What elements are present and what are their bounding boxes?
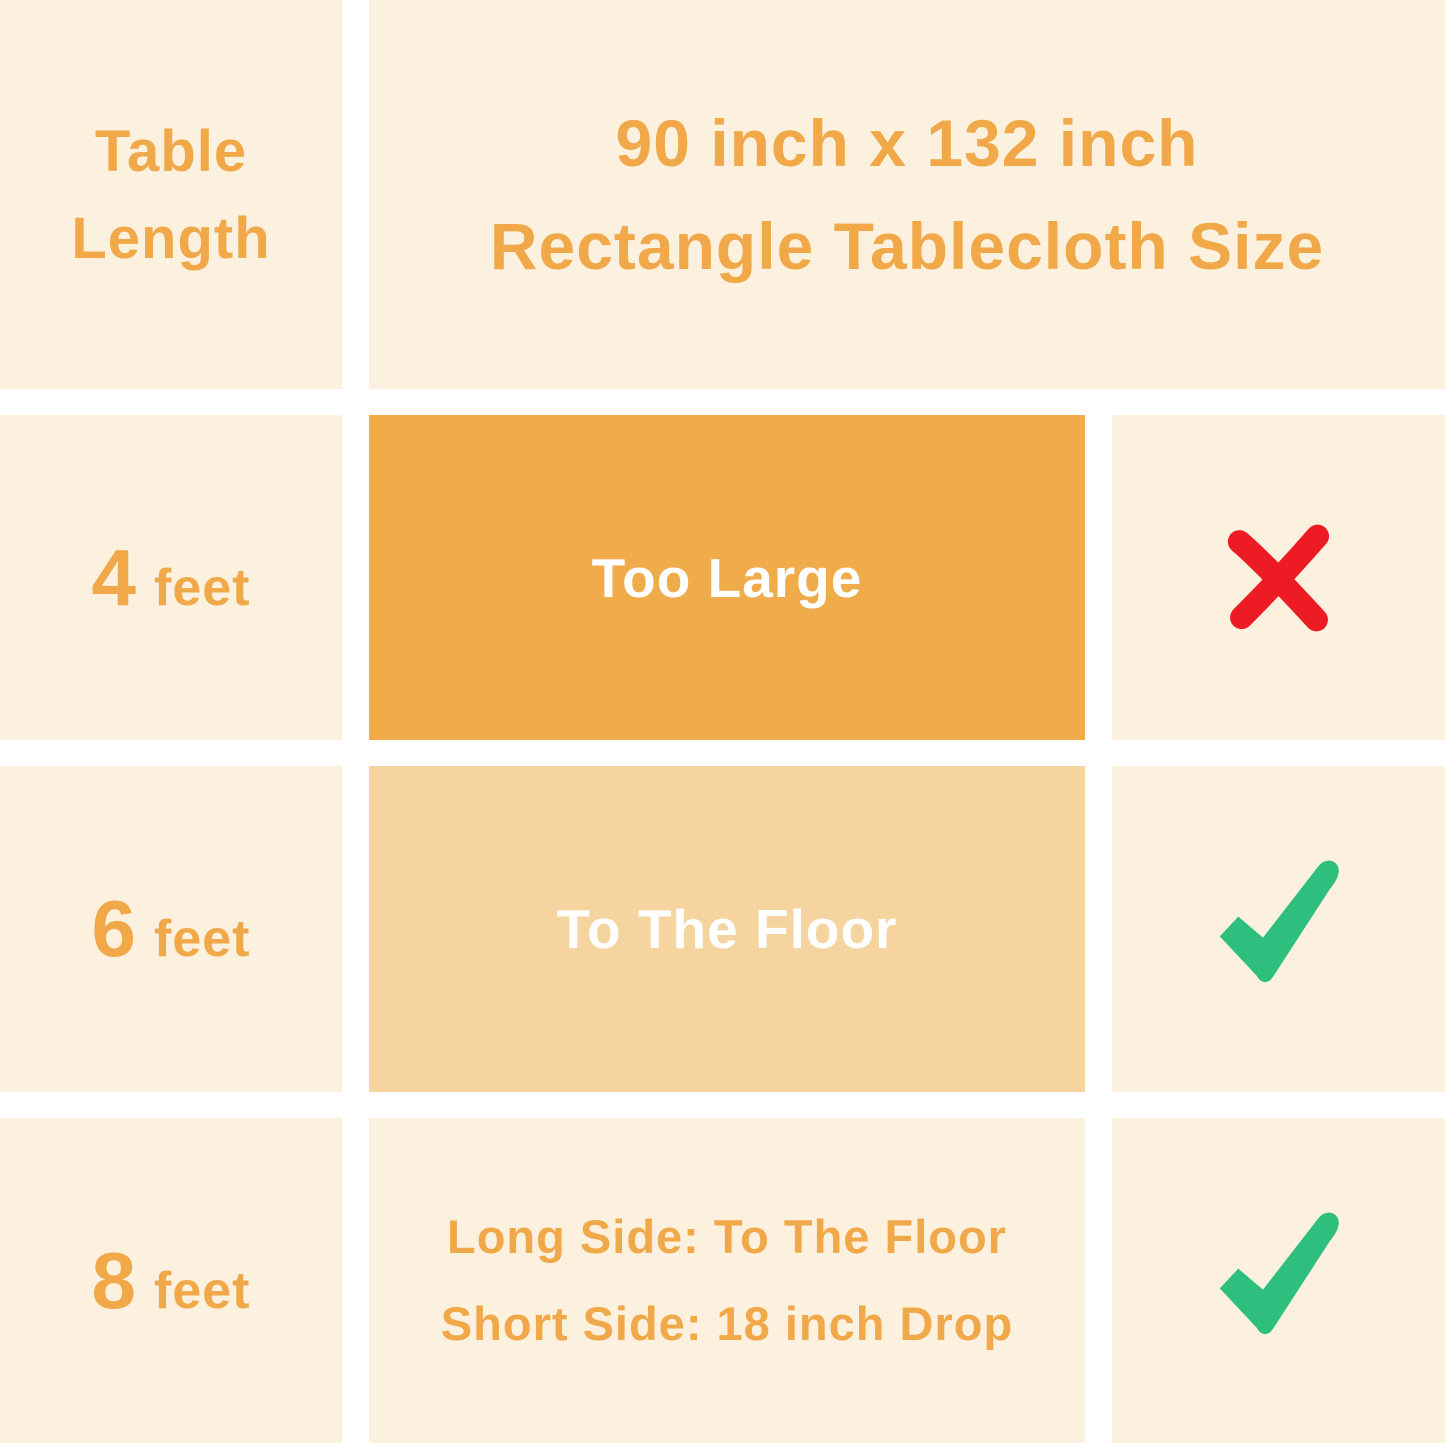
row-6ft-verdict-cell [1112,766,1445,1092]
green-check-icon [1205,1207,1353,1355]
fit-label-to-the-floor: To The Floor [557,897,898,961]
page-title: 90 inch x 132 inch Rectangle Tablecloth … [490,92,1324,297]
length-value: 6 [92,883,137,975]
title-line2: Rectangle Tablecloth Size [490,195,1324,297]
fit-label-too-large: Too Large [592,546,863,610]
fit-description-8ft: Long Side: To The Floor Short Side: 18 i… [441,1194,1013,1368]
row-4ft-length-cell: 4 feet [0,415,342,740]
length-unit: feet [154,909,250,969]
fit-short-side-line: Short Side: 18 inch Drop [441,1281,1013,1368]
green-check-icon [1205,855,1353,1003]
table-length-label: Table Length [71,108,270,282]
red-x-icon [1213,512,1345,644]
length-value: 4 [92,532,137,624]
length-unit: feet [154,1261,250,1321]
length-label-8ft: 8 feet [92,1235,251,1327]
tablecloth-size-infographic: Table Length 90 inch x 132 inch Rectangl… [0,0,1445,1445]
row-8ft-verdict-cell [1112,1118,1445,1443]
length-value: 8 [92,1235,137,1327]
length-label-4ft: 4 feet [92,532,251,624]
row-8ft-length-cell: 8 feet [0,1118,342,1443]
fit-long-side-line: Long Side: To The Floor [441,1194,1013,1281]
title-line1: 90 inch x 132 inch [490,92,1324,194]
header-table-length-cell: Table Length [0,0,342,389]
length-unit: feet [154,558,250,618]
table-length-line1: Table [71,108,270,195]
row-4ft-verdict-cell [1112,415,1445,740]
table-length-line2: Length [71,195,270,282]
length-label-6ft: 6 feet [92,883,251,975]
row-6ft-length-cell: 6 feet [0,766,342,1092]
row-4ft-fit-cell: Too Large [369,415,1085,740]
header-title-cell: 90 inch x 132 inch Rectangle Tablecloth … [369,0,1445,389]
row-6ft-fit-cell: To The Floor [369,766,1085,1092]
row-8ft-fit-cell: Long Side: To The Floor Short Side: 18 i… [369,1118,1085,1443]
